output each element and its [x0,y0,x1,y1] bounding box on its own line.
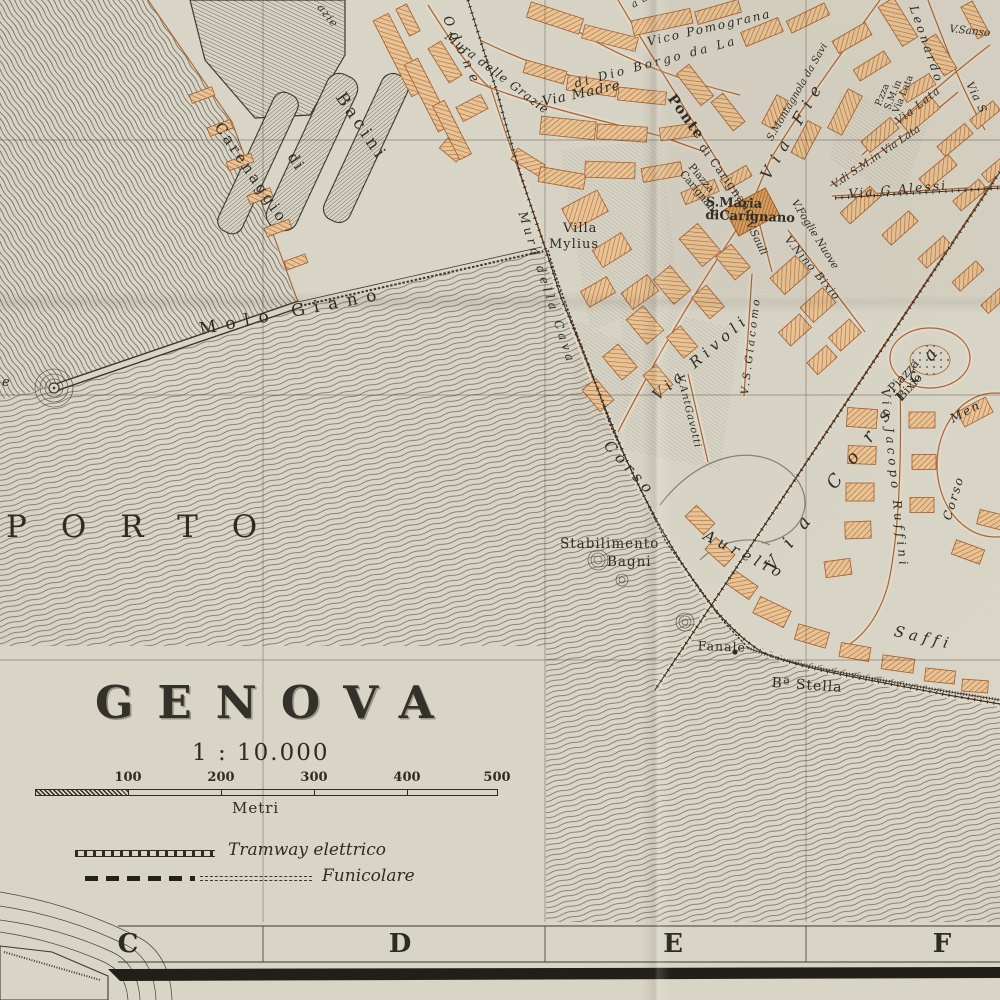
building-block [685,505,715,535]
building-block [786,3,829,33]
legend-paper-area [0,646,546,922]
fanale-lighthouse-icon [732,649,737,654]
building-block [912,455,936,470]
building-block [961,1,989,39]
building-block [695,0,742,24]
building-block [910,498,934,513]
building-block [848,446,877,465]
building-block [846,483,874,501]
building-block [878,0,918,46]
building-block [951,540,984,564]
building-block [585,161,636,179]
building-block [770,255,810,294]
building-block [952,261,984,291]
building-block [753,596,791,627]
building-block [681,179,719,205]
building-block [566,75,618,97]
building-block [659,123,696,141]
building-block [762,95,789,129]
map-page: PORTOMolo GianoBacinidiCarenaggioOdoneMu… [0,0,1000,1000]
park-paths [660,455,805,560]
building-block [597,124,648,142]
building-block [800,288,836,323]
building-block [741,18,784,47]
building-block [881,655,915,673]
building-block [846,407,877,428]
building-block [711,93,745,131]
grid-letter-F: F [927,929,957,959]
piazza-bixio-garden [910,345,950,375]
grid-letter-E: E [658,929,688,959]
building-block [794,624,829,648]
map-canvas [0,0,1000,1000]
building-block [832,22,872,53]
church-block-smaria-carignano [725,188,780,236]
building-block [882,211,918,245]
building-block [981,287,1000,314]
building-block [977,509,1000,530]
building-block [962,679,989,693]
grid-letter-D: D [385,929,415,959]
building-block [807,345,837,374]
building-block [924,668,955,684]
building-block [779,314,812,346]
building-block [526,2,583,34]
building-block [824,558,852,577]
building-block [853,51,890,81]
building-block [631,8,693,35]
building-block [617,87,666,105]
building-block [919,154,957,189]
building-block [839,643,871,662]
building-block [909,412,935,428]
building-block [845,521,872,539]
grid-letter-C: C [113,929,143,959]
